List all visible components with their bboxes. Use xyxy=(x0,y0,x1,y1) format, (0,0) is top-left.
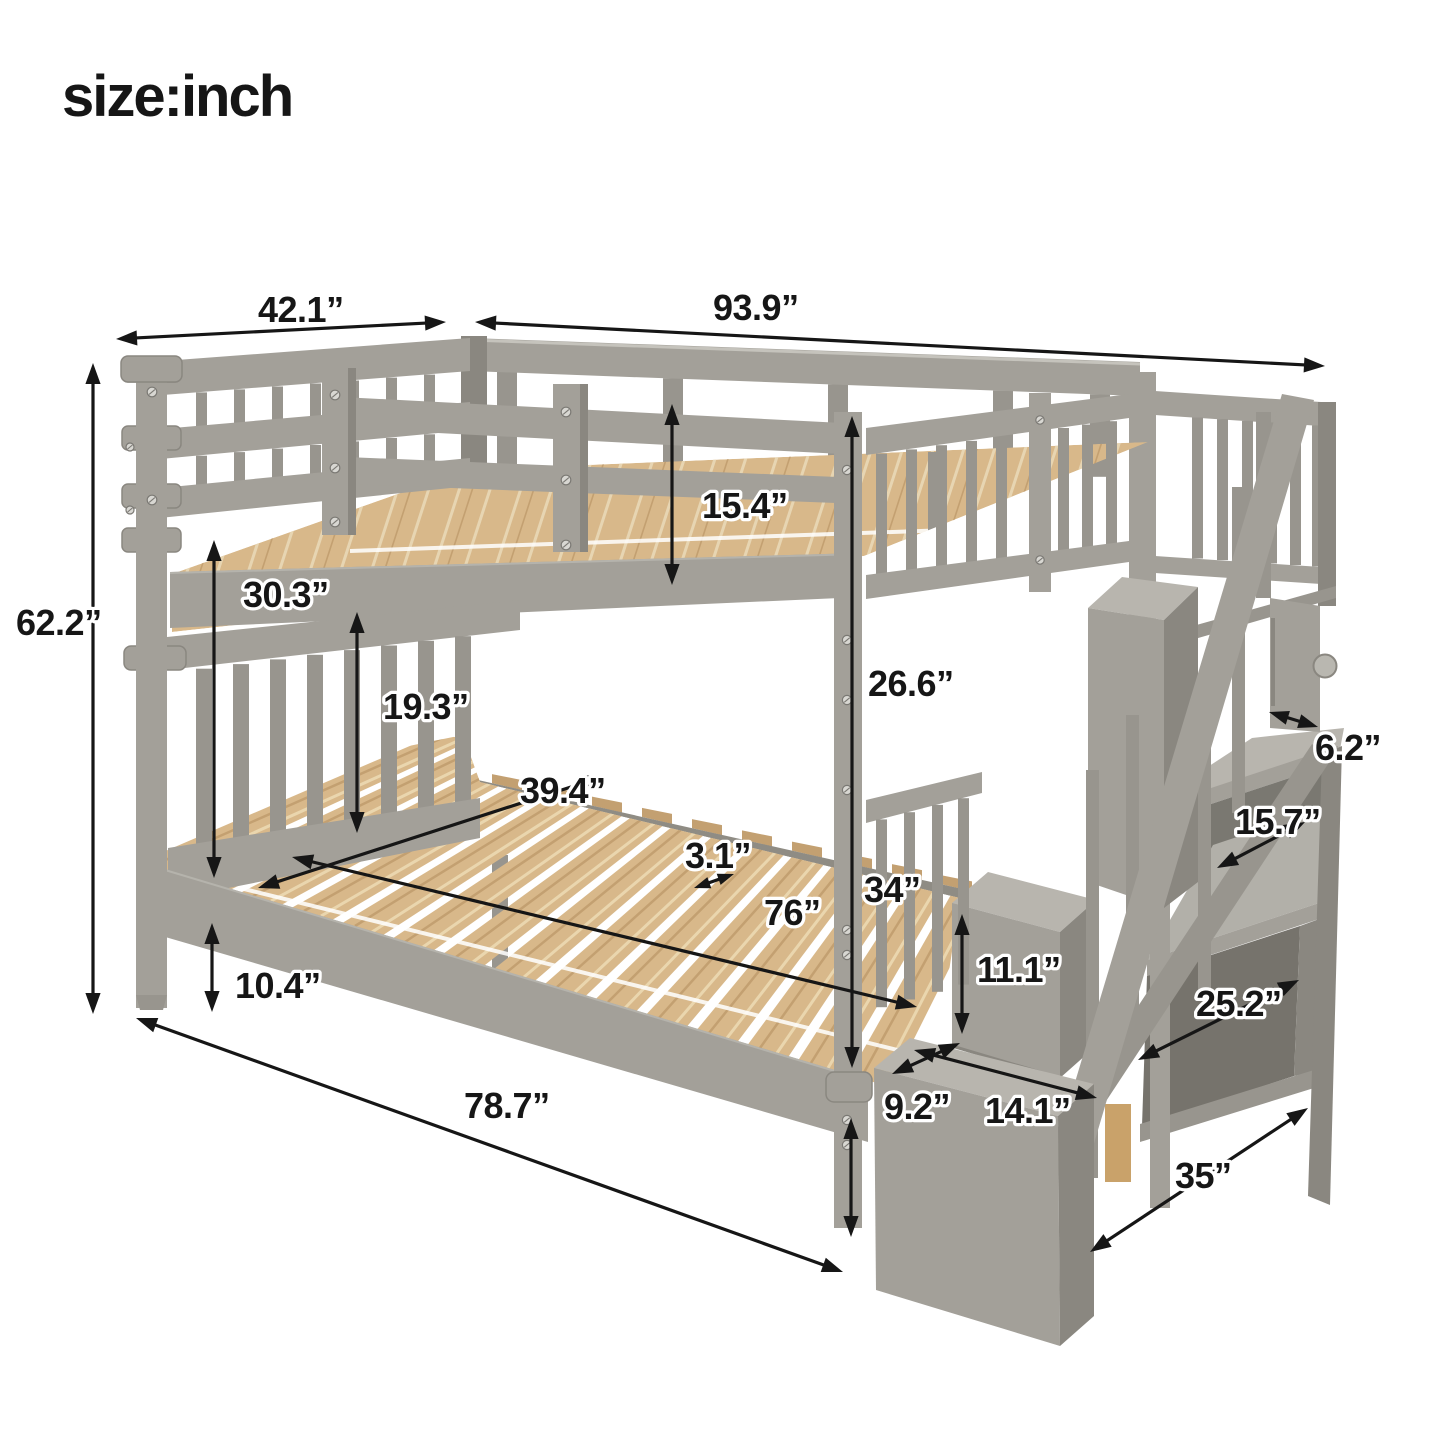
svg-text:10.4”: 10.4” xyxy=(235,965,321,1006)
svg-text:9.2”: 9.2” xyxy=(884,1086,950,1127)
svg-text:25.2”: 25.2” xyxy=(1196,983,1282,1024)
svg-text:15.7”: 15.7” xyxy=(1235,801,1321,842)
svg-text:76”: 76” xyxy=(764,892,821,933)
svg-text:42.1”: 42.1” xyxy=(258,289,344,330)
svg-text:78.7”: 78.7” xyxy=(464,1085,550,1126)
svg-text:14.1”: 14.1” xyxy=(985,1090,1071,1131)
svg-text:11.1”: 11.1” xyxy=(977,949,1061,990)
svg-text:19.3”: 19.3” xyxy=(383,686,469,727)
svg-text:30.3”: 30.3” xyxy=(243,574,329,615)
svg-text:35”: 35” xyxy=(1175,1155,1232,1196)
svg-text:62.2”: 62.2” xyxy=(16,602,102,643)
svg-text:15.4”: 15.4” xyxy=(702,485,788,526)
svg-text:34”: 34” xyxy=(864,869,921,910)
svg-text:26.6”: 26.6” xyxy=(868,663,954,704)
svg-text:39.4”: 39.4” xyxy=(520,770,606,811)
svg-text:3.1”: 3.1” xyxy=(685,835,751,876)
svg-text:93.9”: 93.9” xyxy=(713,287,799,328)
svg-text:size:inch: size:inch xyxy=(62,64,292,129)
svg-text:6.2”: 6.2” xyxy=(1315,727,1381,768)
